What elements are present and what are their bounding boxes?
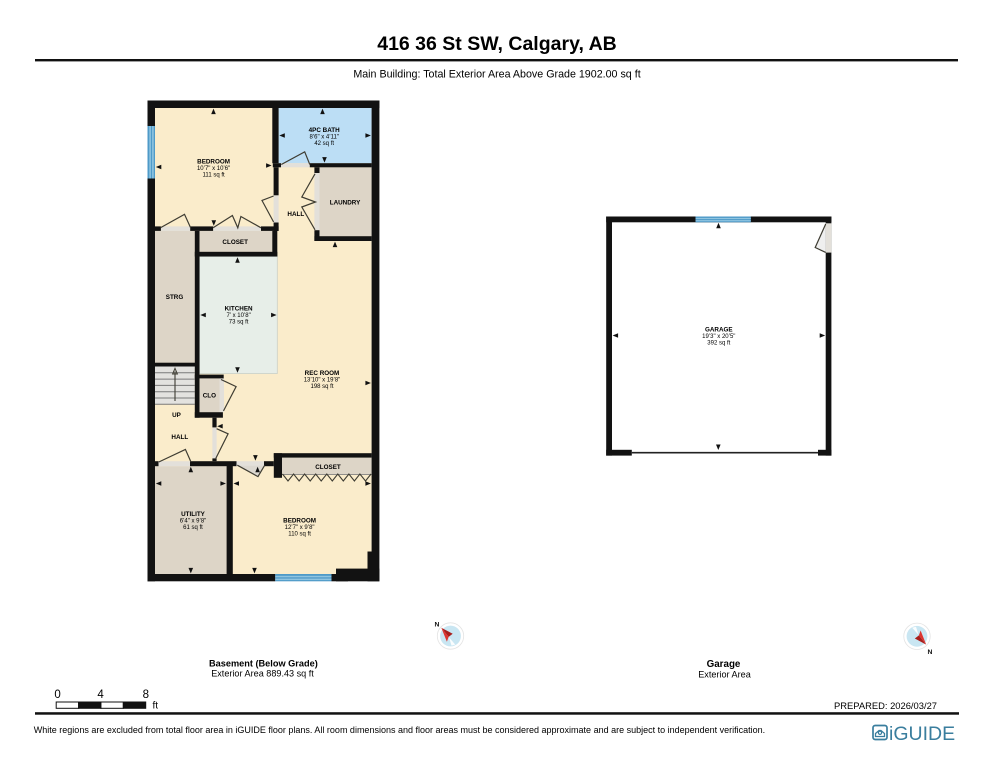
- svg-text:BEDROOM: BEDROOM: [197, 159, 230, 166]
- svg-text:HALL: HALL: [171, 434, 188, 441]
- svg-text:N: N: [435, 622, 440, 629]
- svg-text:42 sq ft: 42 sq ft: [314, 141, 334, 147]
- svg-text:REC ROOM: REC ROOM: [305, 370, 340, 377]
- svg-text:STRG: STRG: [166, 294, 184, 301]
- svg-text:KITCHEN: KITCHEN: [225, 306, 253, 313]
- svg-text:UP: UP: [172, 412, 181, 419]
- svg-text:198 sq ft: 198 sq ft: [310, 384, 333, 390]
- svg-text:N: N: [928, 649, 933, 656]
- svg-text:ft: ft: [153, 701, 159, 712]
- svg-text:12’7" x 9’8": 12’7" x 9’8": [285, 525, 315, 531]
- svg-text:8: 8: [143, 689, 149, 701]
- svg-text:Exterior Area: Exterior Area: [698, 670, 752, 680]
- svg-text:7’ x 10’8": 7’ x 10’8": [226, 313, 250, 319]
- svg-text:CLOSET: CLOSET: [315, 464, 341, 471]
- svg-text:61 sq ft: 61 sq ft: [183, 525, 203, 531]
- svg-text:CLOSET: CLOSET: [222, 239, 248, 246]
- svg-text:iGUIDE: iGUIDE: [889, 723, 955, 745]
- svg-text:4PC BATH: 4PC BATH: [309, 127, 340, 134]
- svg-text:8’6" x 4’11": 8’6" x 4’11": [309, 135, 339, 141]
- svg-text:UTILITY: UTILITY: [181, 511, 206, 518]
- svg-text:Basement (Below Grade): Basement (Below Grade): [209, 659, 318, 669]
- svg-text:19’3" x 20’5": 19’3" x 20’5": [702, 334, 735, 340]
- svg-text:0: 0: [54, 689, 60, 701]
- svg-text:4: 4: [97, 689, 104, 701]
- svg-text:392 sq ft: 392 sq ft: [707, 341, 730, 347]
- svg-text:13’10" x 19’8": 13’10" x 19’8": [304, 378, 341, 384]
- svg-text:10’7" x 10’6": 10’7" x 10’6": [197, 166, 230, 172]
- svg-text:HALL: HALL: [287, 211, 304, 218]
- svg-text:6’4" x 9’8": 6’4" x 9’8": [180, 519, 207, 525]
- svg-text:GARAGE: GARAGE: [705, 327, 733, 334]
- svg-text:73 sq ft: 73 sq ft: [229, 320, 249, 326]
- svg-text:PREPARED: 2026/03/27: PREPARED: 2026/03/27: [834, 700, 937, 711]
- svg-text:111 sq ft: 111 sq ft: [203, 173, 225, 179]
- svg-text:416 36 St SW, Calgary, AB: 416 36 St SW, Calgary, AB: [377, 33, 617, 55]
- svg-text:CLO: CLO: [203, 392, 216, 399]
- svg-text:Exterior Area 889.43 sq ft: Exterior Area 889.43 sq ft: [211, 668, 314, 678]
- svg-text:Main Building: Total Exterior: Main Building: Total Exterior Area Above…: [353, 69, 640, 81]
- svg-text:White regions are excluded fro: White regions are excluded from total fl…: [34, 725, 765, 735]
- svg-text:Garage: Garage: [707, 659, 741, 670]
- svg-text:LAUNDRY: LAUNDRY: [330, 200, 361, 207]
- svg-text:BEDROOM: BEDROOM: [283, 518, 316, 525]
- svg-text:110 sq ft: 110 sq ft: [288, 532, 311, 538]
